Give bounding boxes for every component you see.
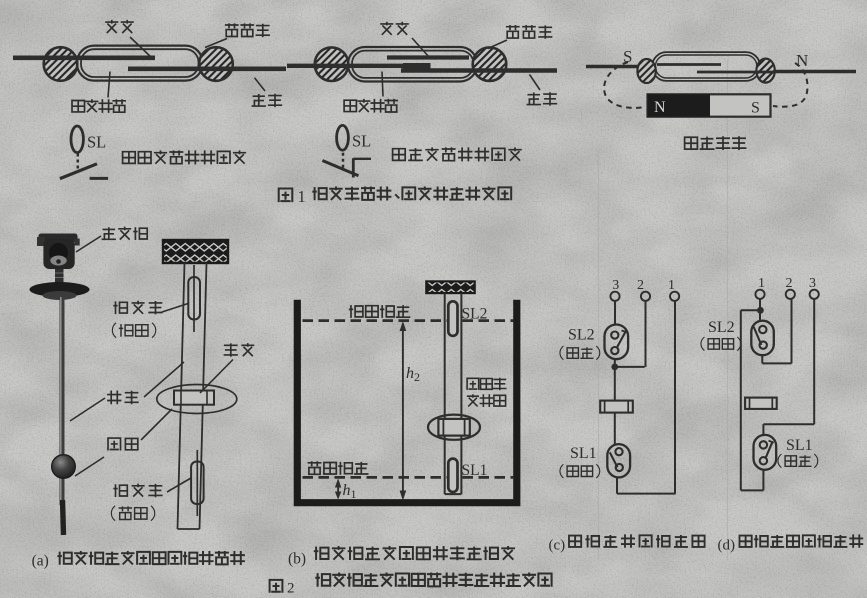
svg-text:1: 1 xyxy=(298,187,306,206)
svg-text:SL2: SL2 xyxy=(568,327,595,344)
svg-text:SL: SL xyxy=(87,133,106,152)
svg-text:3: 3 xyxy=(612,278,619,293)
svg-text:3: 3 xyxy=(809,276,816,291)
svg-text:(a): (a) xyxy=(32,553,49,570)
svg-text:SL1: SL1 xyxy=(570,445,597,462)
svg-text:1: 1 xyxy=(668,278,675,293)
svg-text:N: N xyxy=(654,99,666,116)
svg-text:(d): (d) xyxy=(718,538,736,554)
svg-text:SL2: SL2 xyxy=(462,306,488,323)
svg-text:(c): (c) xyxy=(549,538,566,554)
svg-text:(b): (b) xyxy=(288,551,306,568)
svg-text:SL: SL xyxy=(352,132,371,151)
svg-text:S: S xyxy=(751,100,760,117)
svg-text:SL1: SL1 xyxy=(462,462,488,479)
svg-text:2: 2 xyxy=(287,581,295,597)
svg-text:N: N xyxy=(796,51,808,70)
svg-text:1: 1 xyxy=(758,276,765,291)
svg-text:2: 2 xyxy=(786,276,793,291)
svg-text:SL2: SL2 xyxy=(708,319,735,336)
svg-text:2: 2 xyxy=(637,278,644,293)
svg-text:SL1: SL1 xyxy=(786,437,813,454)
